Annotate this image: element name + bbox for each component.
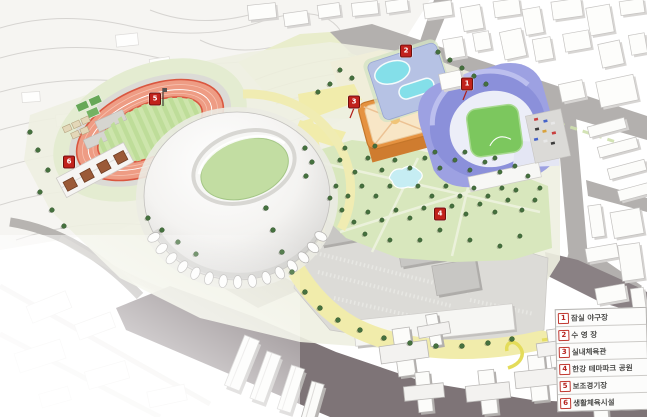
legend-number: 5: [560, 380, 571, 391]
map-marker-5: 5: [149, 93, 161, 106]
legend-label: 한강 테마파크 공원: [572, 362, 633, 375]
legend-label: 수 영 장: [571, 329, 597, 341]
map-marker-4: 4: [434, 208, 446, 221]
legend-label: 실내체육관: [572, 345, 607, 357]
legend-label: 보조경기장: [573, 379, 608, 391]
legend-number: 6: [560, 397, 571, 408]
legend-number: 4: [559, 363, 570, 374]
map-marker-3: 3: [348, 96, 360, 109]
site-plan-rendering: 123456 1잠실 야구장2수 영 장3실내체육관4한강 테마파크 공원5보조…: [0, 0, 647, 417]
legend-label: 생활체육시설: [573, 396, 615, 408]
legend-number: 3: [559, 346, 570, 357]
legend-label: 잠실 야구장: [571, 311, 608, 323]
legend-row-6: 6생활체육시설: [558, 393, 647, 411]
legend-number: 2: [558, 329, 569, 340]
legend-rows: 1잠실 야구장2수 영 장3실내체육관4한강 테마파크 공원5보조경기장6생활체…: [556, 308, 647, 411]
fade-overlay: [0, 235, 300, 417]
map-marker-1: 1: [461, 78, 473, 91]
map-marker-2: 2: [400, 45, 412, 58]
map-marker-6: 6: [63, 156, 75, 169]
legend-number: 1: [558, 312, 569, 323]
masterplan-illustration: [0, 0, 647, 417]
legend: 1잠실 야구장2수 영 장3실내체육관4한강 테마파크 공원5보조경기장6생활체…: [555, 307, 647, 412]
